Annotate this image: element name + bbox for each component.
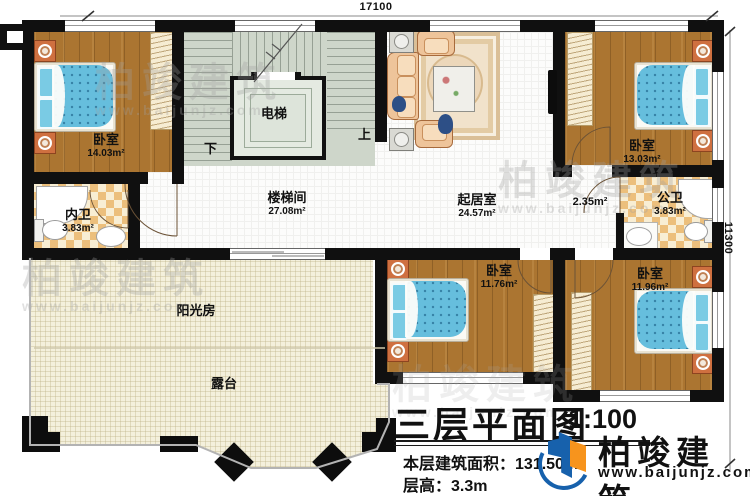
room-label-public-bathroom: 公卫 3.83m² bbox=[654, 191, 686, 217]
elevator-door-jamb-right bbox=[295, 72, 301, 80]
pillow bbox=[694, 322, 710, 352]
room-name: 卧室 bbox=[623, 139, 660, 154]
wall bbox=[172, 20, 184, 184]
wardrobe bbox=[571, 292, 592, 402]
tv bbox=[548, 70, 557, 114]
blanket-fold bbox=[52, 65, 65, 127]
room-label-corridor: 2.35m² bbox=[573, 196, 608, 209]
room-area: 14.03m² bbox=[87, 148, 124, 160]
dimension-width-label: 17100 bbox=[340, 1, 412, 13]
toilet bbox=[684, 222, 708, 241]
lamp-icon bbox=[696, 134, 710, 148]
window bbox=[595, 20, 688, 32]
sofa-cushion bbox=[397, 76, 416, 97]
room-label-bedroom-top-right: 卧室 13.03m² bbox=[623, 139, 660, 165]
room-name: 起居室 bbox=[457, 193, 496, 208]
room-label-stair-hall: 楼梯间 27.08m² bbox=[267, 191, 306, 217]
room-name: 卧室 bbox=[632, 267, 669, 282]
side-table bbox=[389, 128, 414, 151]
pillow bbox=[694, 67, 710, 97]
wall bbox=[565, 165, 572, 177]
stair-down-label: 下 bbox=[204, 138, 217, 157]
nightstand bbox=[387, 340, 409, 362]
blanket-fold bbox=[405, 281, 418, 337]
pillow bbox=[694, 97, 710, 127]
wall bbox=[128, 177, 140, 256]
window bbox=[235, 20, 315, 32]
wardrobe bbox=[533, 294, 555, 374]
terrace-floor bbox=[30, 256, 390, 471]
room-area: 2.35m² bbox=[573, 196, 608, 209]
lamp-icon bbox=[391, 262, 405, 276]
pillar bbox=[362, 432, 396, 452]
dimension-height-label: 11300 bbox=[722, 222, 734, 254]
lamp-icon bbox=[391, 344, 405, 358]
pillar bbox=[22, 432, 60, 452]
room-area: 3.83m² bbox=[654, 206, 686, 218]
room-name: 电梯 bbox=[261, 107, 287, 122]
nightstand bbox=[692, 352, 714, 374]
room-area: 3.83m² bbox=[62, 223, 94, 235]
room-label-living-room: 起居室 24.57m² bbox=[457, 193, 496, 219]
lamp-icon bbox=[696, 356, 710, 370]
brand-logo bbox=[540, 428, 592, 488]
bed-frame bbox=[34, 62, 116, 132]
room-area: 24.57m² bbox=[457, 208, 496, 220]
brand-website: www.baijunjz.com bbox=[598, 464, 750, 481]
wall bbox=[375, 372, 403, 384]
pillar bbox=[160, 436, 198, 452]
wall bbox=[172, 172, 184, 184]
floor-height-value: 3.3m bbox=[451, 478, 487, 495]
person-figure bbox=[438, 114, 453, 134]
wall bbox=[613, 248, 724, 260]
sliding-door bbox=[230, 248, 325, 260]
mattress bbox=[54, 65, 113, 127]
floor-plan-canvas: 卧室 14.03m² 内卫 3.83m² 楼梯间 27.08m² 电梯 下 上 … bbox=[0, 0, 750, 496]
stair-treads-right bbox=[327, 32, 375, 132]
window bbox=[430, 20, 520, 32]
room-label-bedroom-bottom-right: 卧室 11.96m² bbox=[632, 267, 669, 293]
room-name: 内卫 bbox=[62, 208, 94, 223]
chair-cushion bbox=[424, 38, 449, 54]
floor-area-label: 本层建筑面积： bbox=[403, 456, 515, 473]
window bbox=[403, 372, 523, 384]
mattress bbox=[637, 291, 693, 349]
wall bbox=[375, 20, 387, 142]
nightstand bbox=[387, 258, 409, 280]
room-area: 13.03m² bbox=[623, 154, 660, 166]
room-area: 11.76m² bbox=[481, 279, 518, 291]
wall bbox=[550, 248, 575, 260]
floor-height-label: 层高： bbox=[403, 478, 451, 495]
wall bbox=[712, 20, 724, 72]
wall bbox=[325, 248, 520, 260]
lamp-icon bbox=[696, 270, 710, 284]
elevator-door-gap bbox=[256, 72, 296, 80]
coffee-table bbox=[433, 66, 475, 112]
room-label-bedroom-bottom-left: 卧室 11.76m² bbox=[481, 264, 518, 290]
brand-name: 柏竣建筑 bbox=[598, 426, 750, 496]
bed-frame bbox=[387, 278, 469, 342]
sink bbox=[626, 227, 652, 246]
window bbox=[65, 20, 155, 32]
wall bbox=[523, 372, 565, 384]
stair-treads-middle bbox=[232, 32, 326, 76]
mattress bbox=[407, 281, 466, 337]
wardrobe bbox=[567, 32, 593, 126]
room-label-elevator: 电梯 bbox=[261, 107, 287, 122]
wall bbox=[155, 20, 235, 32]
room-label-inner-bathroom: 内卫 3.83m² bbox=[62, 208, 94, 234]
window bbox=[600, 390, 690, 402]
sofa-cushion bbox=[397, 55, 416, 76]
nightstand bbox=[692, 40, 714, 62]
chimney bbox=[0, 24, 30, 50]
room-label-sunroom: 阳光房 bbox=[176, 304, 215, 319]
room-label-terrace: 露台 bbox=[211, 377, 237, 392]
stair-up-label: 上 bbox=[358, 124, 371, 143]
lamp-icon bbox=[696, 44, 710, 58]
nightstand bbox=[692, 130, 714, 152]
room-name: 卧室 bbox=[87, 133, 124, 148]
pillow bbox=[694, 293, 710, 323]
room-name: 阳光房 bbox=[176, 304, 215, 319]
wall bbox=[690, 390, 724, 402]
person-figure bbox=[392, 96, 406, 112]
room-name: 露台 bbox=[211, 377, 237, 392]
window bbox=[712, 72, 724, 160]
mattress bbox=[637, 65, 693, 125]
room-name: 楼梯间 bbox=[267, 191, 306, 206]
room-name: 公卫 bbox=[654, 191, 686, 206]
floor-height-line: 层高：3.3m bbox=[403, 472, 487, 496]
window bbox=[712, 292, 724, 348]
table-lamp-icon bbox=[394, 34, 409, 49]
nightstand bbox=[692, 266, 714, 288]
wall bbox=[612, 165, 712, 177]
wall bbox=[375, 260, 387, 384]
wall bbox=[315, 20, 430, 32]
nightstand bbox=[34, 40, 56, 62]
room-label-bedroom-top-left: 卧室 14.03m² bbox=[87, 133, 124, 159]
wall bbox=[22, 20, 34, 258]
nightstand bbox=[34, 132, 56, 154]
room-area: 27.08m² bbox=[267, 206, 306, 218]
bed-frame bbox=[634, 62, 714, 130]
wardrobe bbox=[150, 32, 174, 130]
elevator-door-jamb-left bbox=[251, 72, 257, 80]
room-area: 11.96m² bbox=[632, 282, 669, 294]
side-table bbox=[389, 30, 414, 53]
window bbox=[712, 188, 724, 222]
sink bbox=[96, 226, 126, 247]
wall bbox=[22, 248, 230, 260]
lamp-icon bbox=[38, 136, 52, 150]
wall bbox=[712, 160, 724, 188]
armchair bbox=[417, 30, 455, 56]
lamp-icon bbox=[38, 44, 52, 58]
table-lamp-icon bbox=[394, 132, 409, 147]
room-name: 卧室 bbox=[481, 264, 518, 279]
bed-frame bbox=[634, 288, 714, 354]
